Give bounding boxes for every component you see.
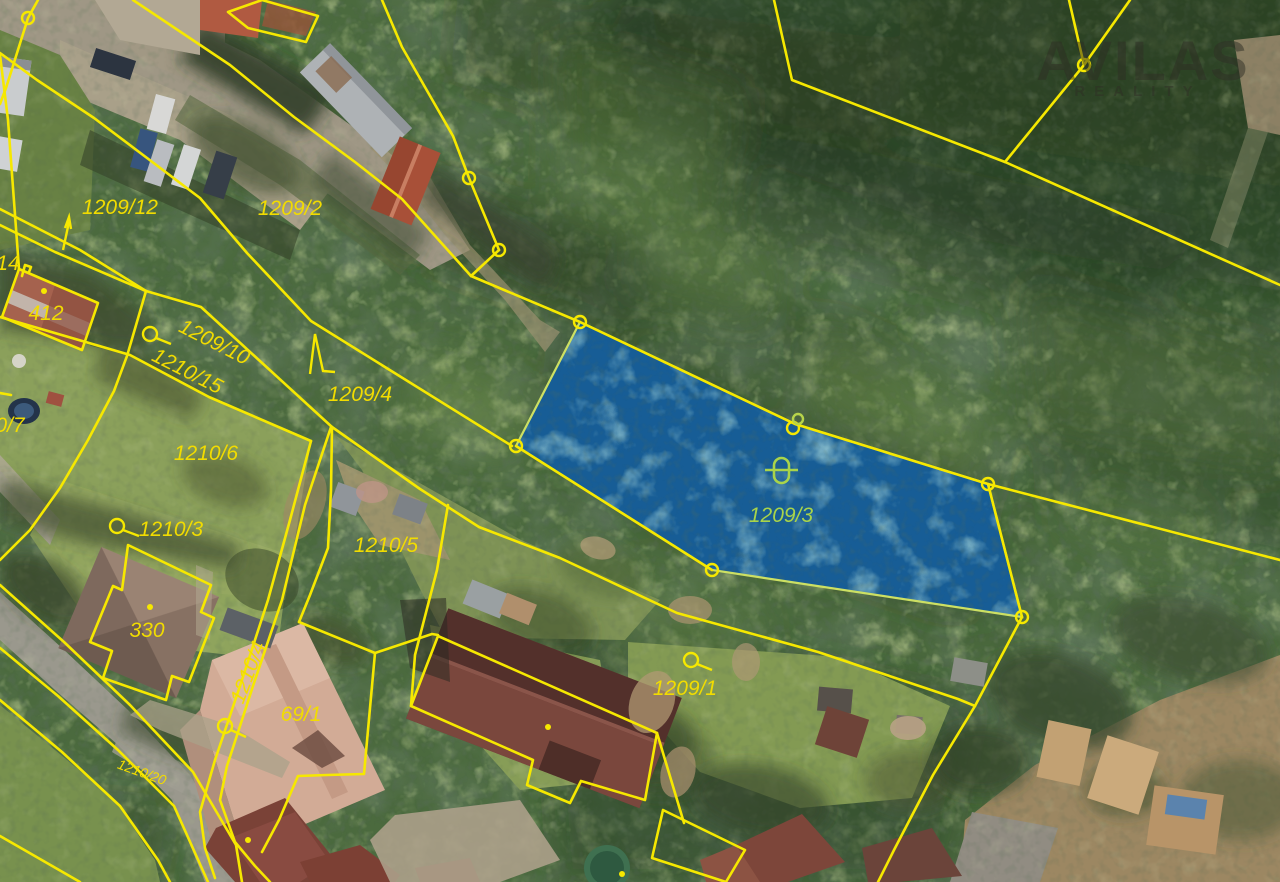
svg-text:1209/12: 1209/12 xyxy=(82,196,158,219)
svg-text:1210/3: 1210/3 xyxy=(139,518,204,541)
svg-text:1209/1: 1209/1 xyxy=(653,677,717,700)
svg-text:0/7: 0/7 xyxy=(0,414,26,437)
svg-text:1209/4: 1209/4 xyxy=(328,383,392,406)
svg-text:69/1: 69/1 xyxy=(281,703,322,726)
svg-text:1210/5: 1210/5 xyxy=(354,534,419,557)
svg-text:14: 14 xyxy=(0,252,20,275)
svg-text:330: 330 xyxy=(129,619,164,642)
svg-text:1209/2: 1209/2 xyxy=(258,197,323,220)
svg-text:1210/6: 1210/6 xyxy=(174,442,239,465)
svg-text:1209/3: 1209/3 xyxy=(749,504,814,527)
svg-text:REALITY: REALITY xyxy=(1074,83,1201,100)
svg-text:412: 412 xyxy=(28,302,63,325)
